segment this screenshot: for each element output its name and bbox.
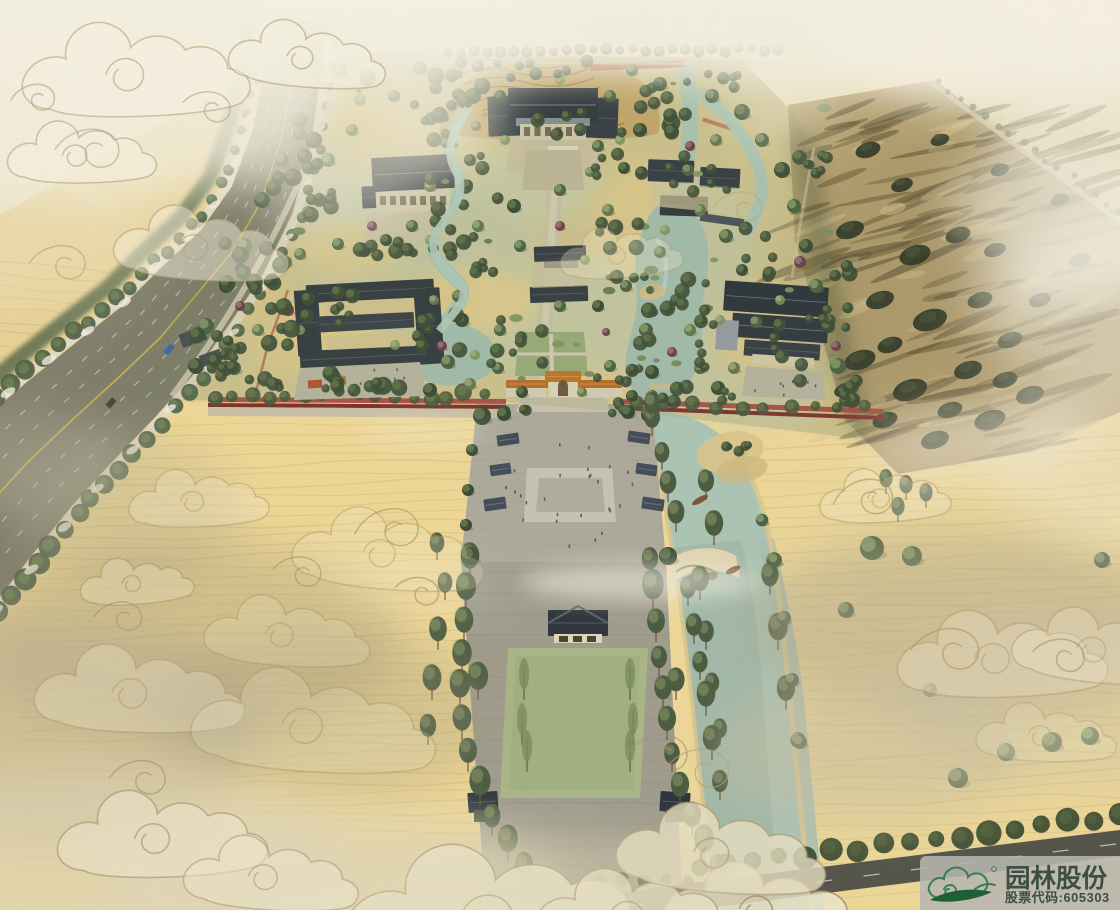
svg-text:园林股份: 园林股份 (1005, 865, 1108, 893)
svg-text:股票代码:605303: 股票代码:605303 (1005, 890, 1110, 905)
